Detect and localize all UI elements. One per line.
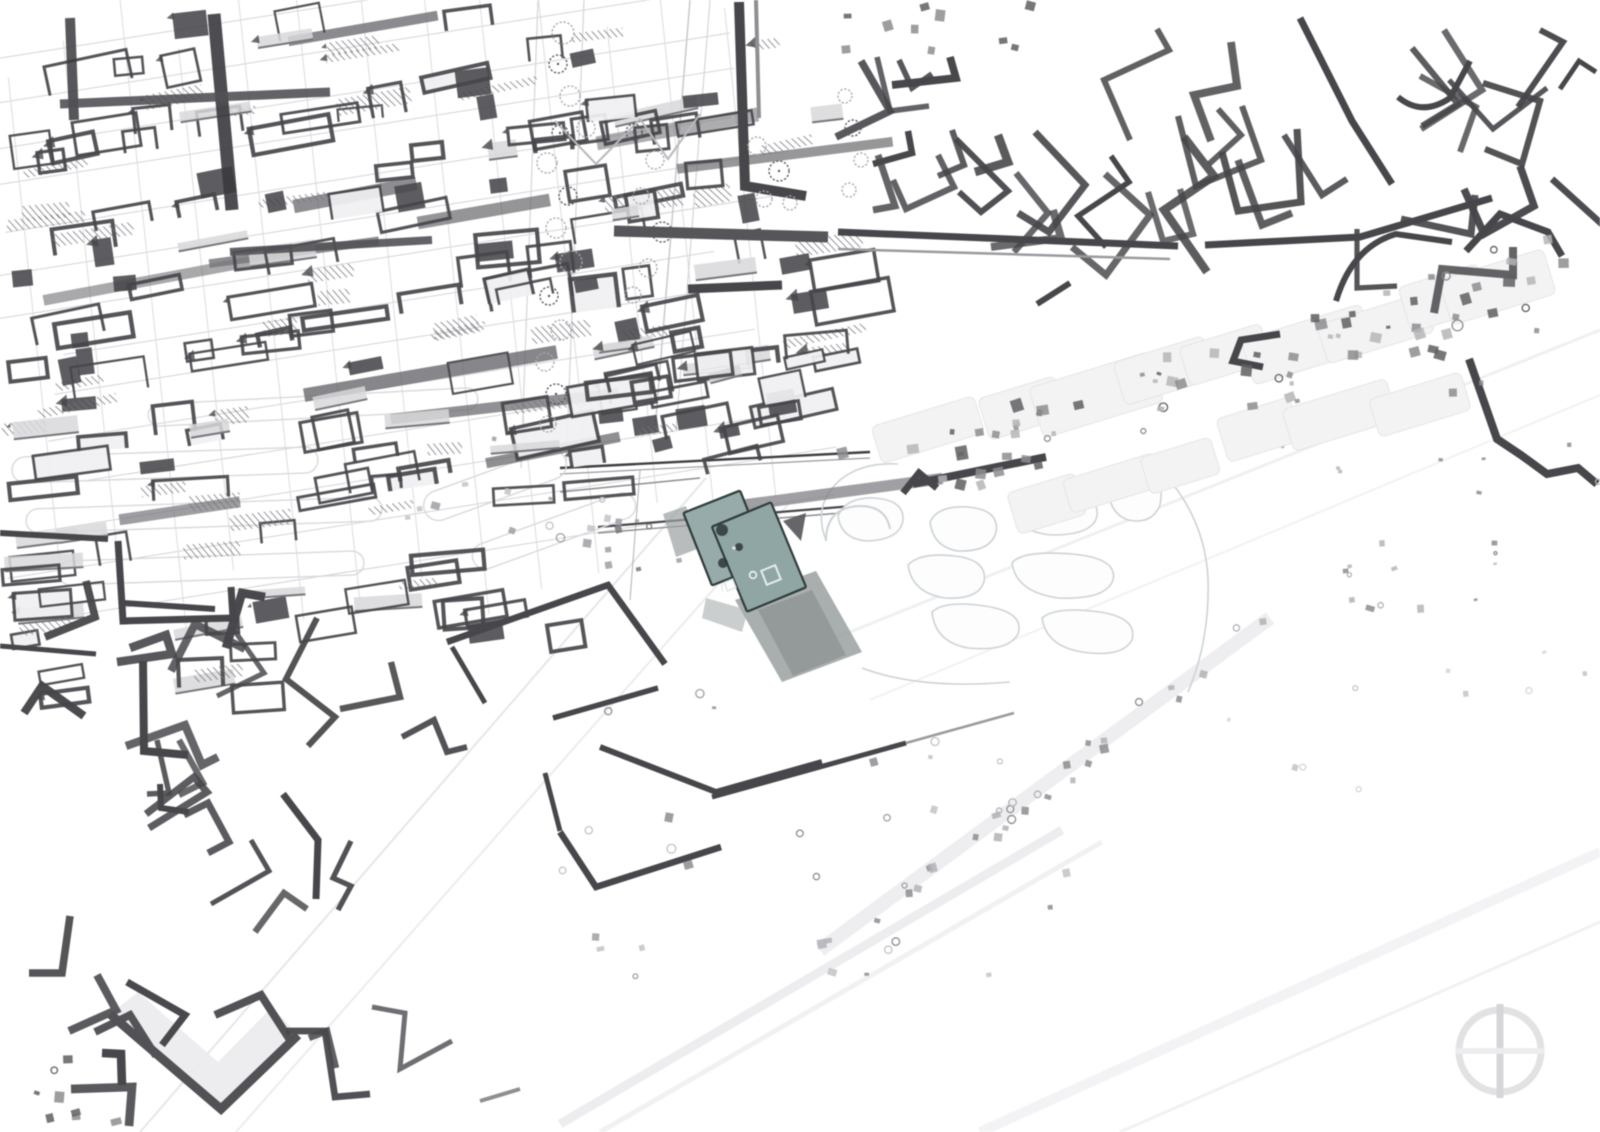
map-speck [1522,304,1529,311]
map-speck [559,867,566,874]
map-speck [1417,605,1424,613]
building-hatch [427,442,463,456]
map-speck [1085,740,1091,746]
map-speck [1288,352,1299,361]
map-speck [954,478,966,491]
map-speck [1441,328,1453,340]
building-stroke [402,720,467,752]
building-outline [623,266,653,300]
tree-icon [567,195,569,197]
building-outline [452,647,485,703]
map-speck [1503,275,1515,287]
building-stroke [1238,160,1292,225]
map-speck [1391,566,1398,572]
building-stroke [29,916,70,973]
map-speck [906,889,913,897]
map-speck [938,475,947,483]
map-speck [492,436,497,441]
building-block [348,356,384,375]
map-speck [836,447,849,460]
building-block [779,253,811,275]
courtyard-detail [732,546,736,550]
building-outline [1205,198,1492,245]
map-speck [1543,235,1553,245]
park-path [1042,610,1133,654]
map-speck [927,46,935,55]
map-speck [639,944,646,951]
map-speck [1063,761,1071,770]
map-speck [1542,650,1547,653]
map-speck [1289,381,1293,386]
map-speck [1259,618,1267,625]
map-speck [1349,597,1355,603]
map-speck [874,918,881,924]
building-stroke [333,841,351,910]
map-speck [635,519,640,523]
map-speck [993,833,1002,842]
building-block [570,49,596,68]
street-line [0,68,734,186]
map-speck [884,815,890,821]
building-outline [8,358,48,382]
map-speck [54,1091,65,1103]
building-outline [176,194,217,218]
map-speck [1348,350,1359,360]
building-hatch [38,393,118,419]
map-speck [604,561,612,569]
building-mark [480,139,493,152]
map-speck [1492,541,1498,546]
building-outline [756,0,759,118]
tree-icon [552,22,574,44]
map-speck [1010,429,1020,438]
tree-icon [548,295,550,297]
map-speck [1011,44,1019,52]
map-speck [1300,764,1306,770]
map-speck [51,1067,58,1074]
building-mark [247,603,252,608]
map-speck [417,506,423,512]
map-speck [1136,699,1143,706]
map-speck [592,933,600,941]
map-speck [869,757,879,767]
building-outline [399,285,462,314]
building-outline [493,485,554,505]
building-outline [123,603,215,609]
tree-icon [852,127,854,129]
map-speck [931,738,939,746]
map-speck [864,973,869,976]
building-outline [1037,283,1070,304]
map-speck [1044,794,1052,800]
street-grid-layer [0,0,1600,1132]
map-speck [1582,671,1587,676]
map-speck [1494,552,1497,555]
building-stroke [1104,29,1169,140]
building-outline [565,165,610,202]
map-speck [1247,402,1258,410]
building-stroke [340,662,400,709]
map-speck [1452,313,1460,320]
map-speck [882,19,894,32]
map-speck [1021,455,1031,463]
map-speck [63,1055,73,1063]
tree-icon [778,170,780,172]
map-speck [1409,346,1421,358]
map-speck [976,479,987,490]
building-outline [480,1089,520,1101]
park-path [838,498,903,541]
building-block [737,193,759,224]
tree-icon [842,183,856,197]
map-speck [1341,317,1352,329]
map-speck [1176,695,1183,702]
building-outline [545,773,560,831]
map-speck [604,514,611,522]
map-speck [615,518,622,526]
map-speck [1379,540,1385,547]
road-line [820,618,1270,950]
park-path [1012,553,1113,598]
map-speck [1347,564,1352,568]
building-stroke [1078,156,1129,247]
tree-icon [633,131,635,133]
building-hatch [570,28,623,43]
map-speck [614,525,622,534]
map-speck [1476,490,1482,495]
map-speck [1047,905,1053,910]
building-outline [1560,61,1596,89]
building-block [172,10,209,39]
building-block [394,182,425,212]
map-speck [911,25,919,34]
map-speck [1479,380,1484,385]
building-mark [208,410,216,418]
building-outline [328,186,383,219]
map-speck [1227,717,1231,722]
map-speck [930,805,938,814]
building-outline [614,231,828,237]
tree-icon [537,153,557,173]
map-speck [546,522,553,529]
map-speck [935,9,946,22]
map-speck [955,445,969,461]
map-speck [1491,246,1497,252]
building-block [614,317,640,343]
map-speck [797,830,804,837]
map-speck [1141,429,1146,434]
building-outline [1300,18,1392,184]
building-outline [372,1007,452,1069]
building-block [598,408,624,424]
site-plan-viewer [0,0,1600,1132]
map-speck [636,567,642,572]
map-speck [1558,258,1569,268]
building-stroke [71,1087,132,1126]
map-speck [462,482,468,487]
park-path [908,555,984,598]
building-mark [502,129,507,134]
building-stroke [102,1053,122,1085]
map-speck [885,946,892,953]
map-speck [1311,314,1320,322]
building-outline [33,446,111,480]
park-path [932,604,1019,649]
map-speck [430,501,440,510]
map-speck [986,972,992,977]
map-speck [1438,458,1443,462]
map-speck [1526,688,1532,694]
map-speck [1410,297,1418,306]
map-speck [1378,603,1383,608]
map-speck [1463,690,1469,697]
building-block [652,435,673,452]
map-speck [676,558,682,563]
tree-icon [854,153,868,167]
map-speck [999,37,1008,44]
building-hatch [317,288,350,305]
map-speck [1233,625,1239,631]
map-speck [827,968,837,977]
building-block [12,269,34,287]
map-speck [1481,457,1485,460]
map-speck [1163,352,1171,362]
site-plan-map [0,0,1600,1132]
map-speck [548,497,553,501]
map-speck [1168,685,1175,691]
map-speck [667,844,676,853]
road-line [140,478,706,1132]
street-line [0,150,789,281]
building-stroke [184,803,229,853]
map-speck [892,938,900,946]
map-speck [972,834,979,841]
map-speck [605,547,612,553]
building-outline [249,114,333,155]
map-speck [712,706,716,709]
park-path [930,507,996,551]
tree-icon [716,524,728,536]
map-speck [45,1113,54,1123]
building-block [489,177,508,193]
map-speck [1153,379,1158,383]
map-speck [975,469,986,480]
map-speck [633,974,638,979]
map-speck [110,1117,122,1126]
building-outline [39,664,85,685]
map-speck [997,759,1002,764]
building-block [113,275,137,292]
building-block [252,596,289,623]
building-outline [283,794,318,899]
building-block [265,191,287,213]
map-speck [919,2,930,11]
compass-icon [1456,1004,1544,1098]
tree-icon [560,86,580,106]
building-stroke [255,893,307,932]
map-speck [1474,598,1478,602]
map-speck [1240,364,1252,377]
road-line [1120,922,1600,1132]
tree-icon [555,393,557,395]
tree-icon [557,63,559,65]
map-speck [950,429,955,435]
building-stroke [1284,135,1347,195]
map-speck [596,946,605,952]
building-outline [712,743,906,797]
map-speck [585,827,592,834]
map-speck [1526,276,1536,285]
map-speck [1365,604,1375,612]
map-speck [1021,807,1029,815]
map-speck [1353,686,1358,691]
map-speck [1025,0,1036,11]
building-outline [600,747,822,792]
building-outline [376,162,413,181]
building-slab [256,28,313,48]
tree-icon [646,151,664,169]
building-stroke [1552,179,1600,227]
tree-icon [718,558,728,568]
map-speck [1347,573,1351,577]
building-block [682,92,718,108]
building-hatch [188,492,240,512]
building-mark [321,43,327,49]
map-speck [1002,825,1009,831]
map-speck [1349,311,1356,318]
building-mark [580,98,589,107]
building-outline [739,2,806,196]
map-speck [696,690,704,698]
map-speck [913,884,922,892]
map-speck [1449,388,1457,396]
building-mark [166,12,174,20]
road-line [600,842,1102,1132]
park-path [862,668,1010,684]
building-hatch [530,319,591,344]
building-outline [60,92,330,104]
map-speck [844,14,852,19]
map-speck [664,812,674,822]
building-outline [688,285,782,289]
map-speck [1002,453,1012,460]
building-outline [906,713,1014,743]
map-speck [1567,443,1571,447]
map-speck [1051,431,1056,436]
map-speck [975,428,985,437]
building-stroke [893,155,954,209]
map-speck [405,515,411,519]
building-hatch [368,500,414,516]
map-speck [34,1090,41,1095]
map-speck [1328,334,1334,339]
tree-icon [661,231,663,233]
map-speck [813,873,819,879]
map-speck [1356,787,1361,792]
building-outline [9,477,78,501]
building-outline [570,446,605,467]
map-speck [841,45,850,54]
building-outline [411,142,444,161]
map-speck [906,444,919,455]
building-outline [444,5,493,31]
building-hatch [141,481,187,497]
map-speck [582,539,591,548]
map-speck [928,755,933,760]
tree-icon [838,89,852,103]
map-speck [992,430,1001,438]
map-speck [1534,328,1540,334]
map-speck [1209,348,1219,358]
building-block [476,94,497,121]
map-speck [1100,737,1107,744]
building-outline [1469,359,1597,484]
map-speck [1062,868,1071,878]
building-stroke [117,635,172,662]
map-speck [825,938,832,944]
map-speck [1383,290,1390,296]
tree-icon [559,132,561,134]
tree-icon [735,543,743,551]
map-speck [1493,562,1497,565]
map-speck [1036,404,1049,416]
map-speck [1291,764,1298,772]
map-speck [1446,668,1451,673]
map-speck [1070,777,1075,783]
map-speck [1099,744,1109,754]
building-outline [560,832,721,887]
map-speck [1428,274,1435,280]
map-speck [1157,405,1165,412]
building-block [455,67,492,98]
